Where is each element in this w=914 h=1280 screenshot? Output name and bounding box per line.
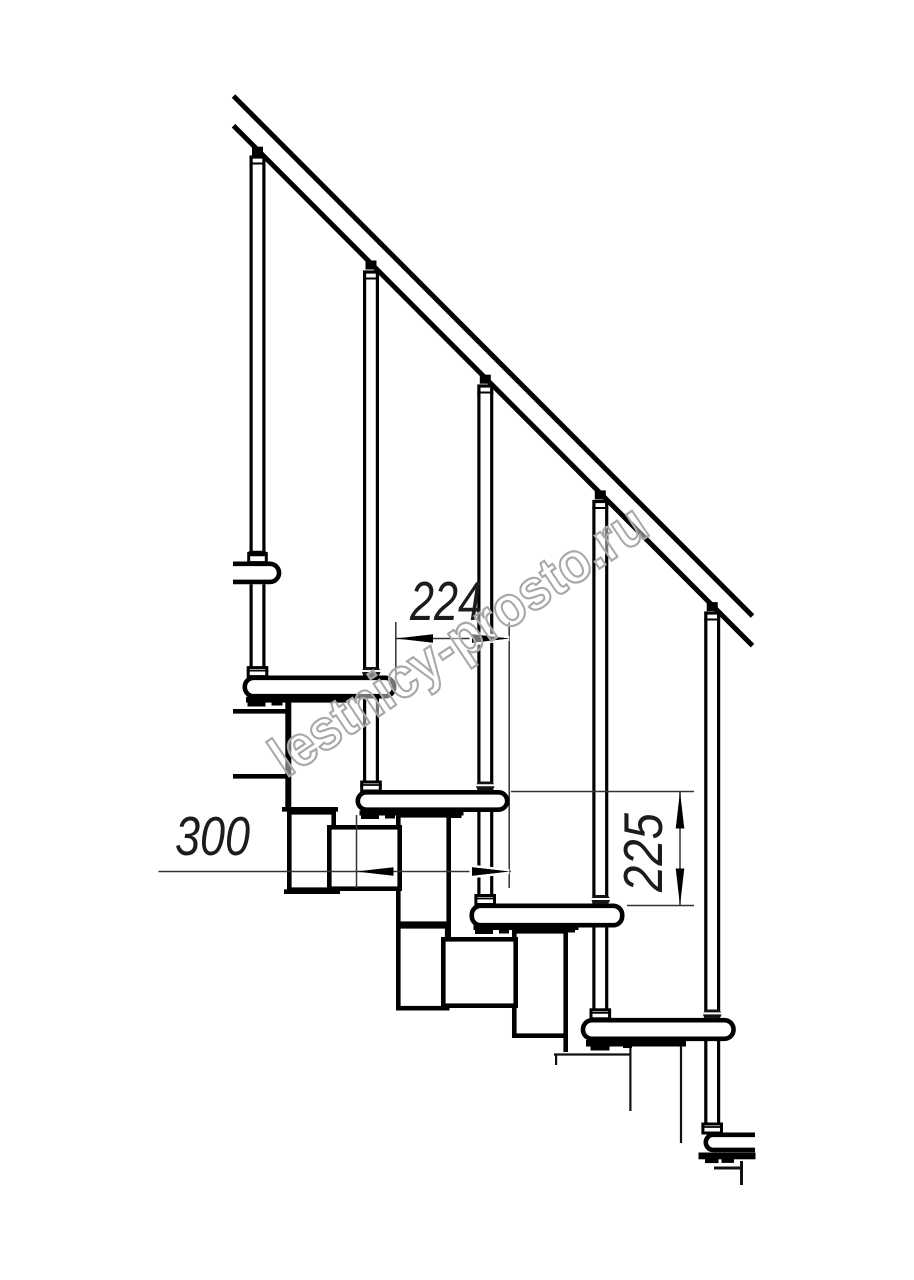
svg-text:300: 300	[175, 805, 250, 867]
svg-text:225: 225	[612, 813, 674, 893]
